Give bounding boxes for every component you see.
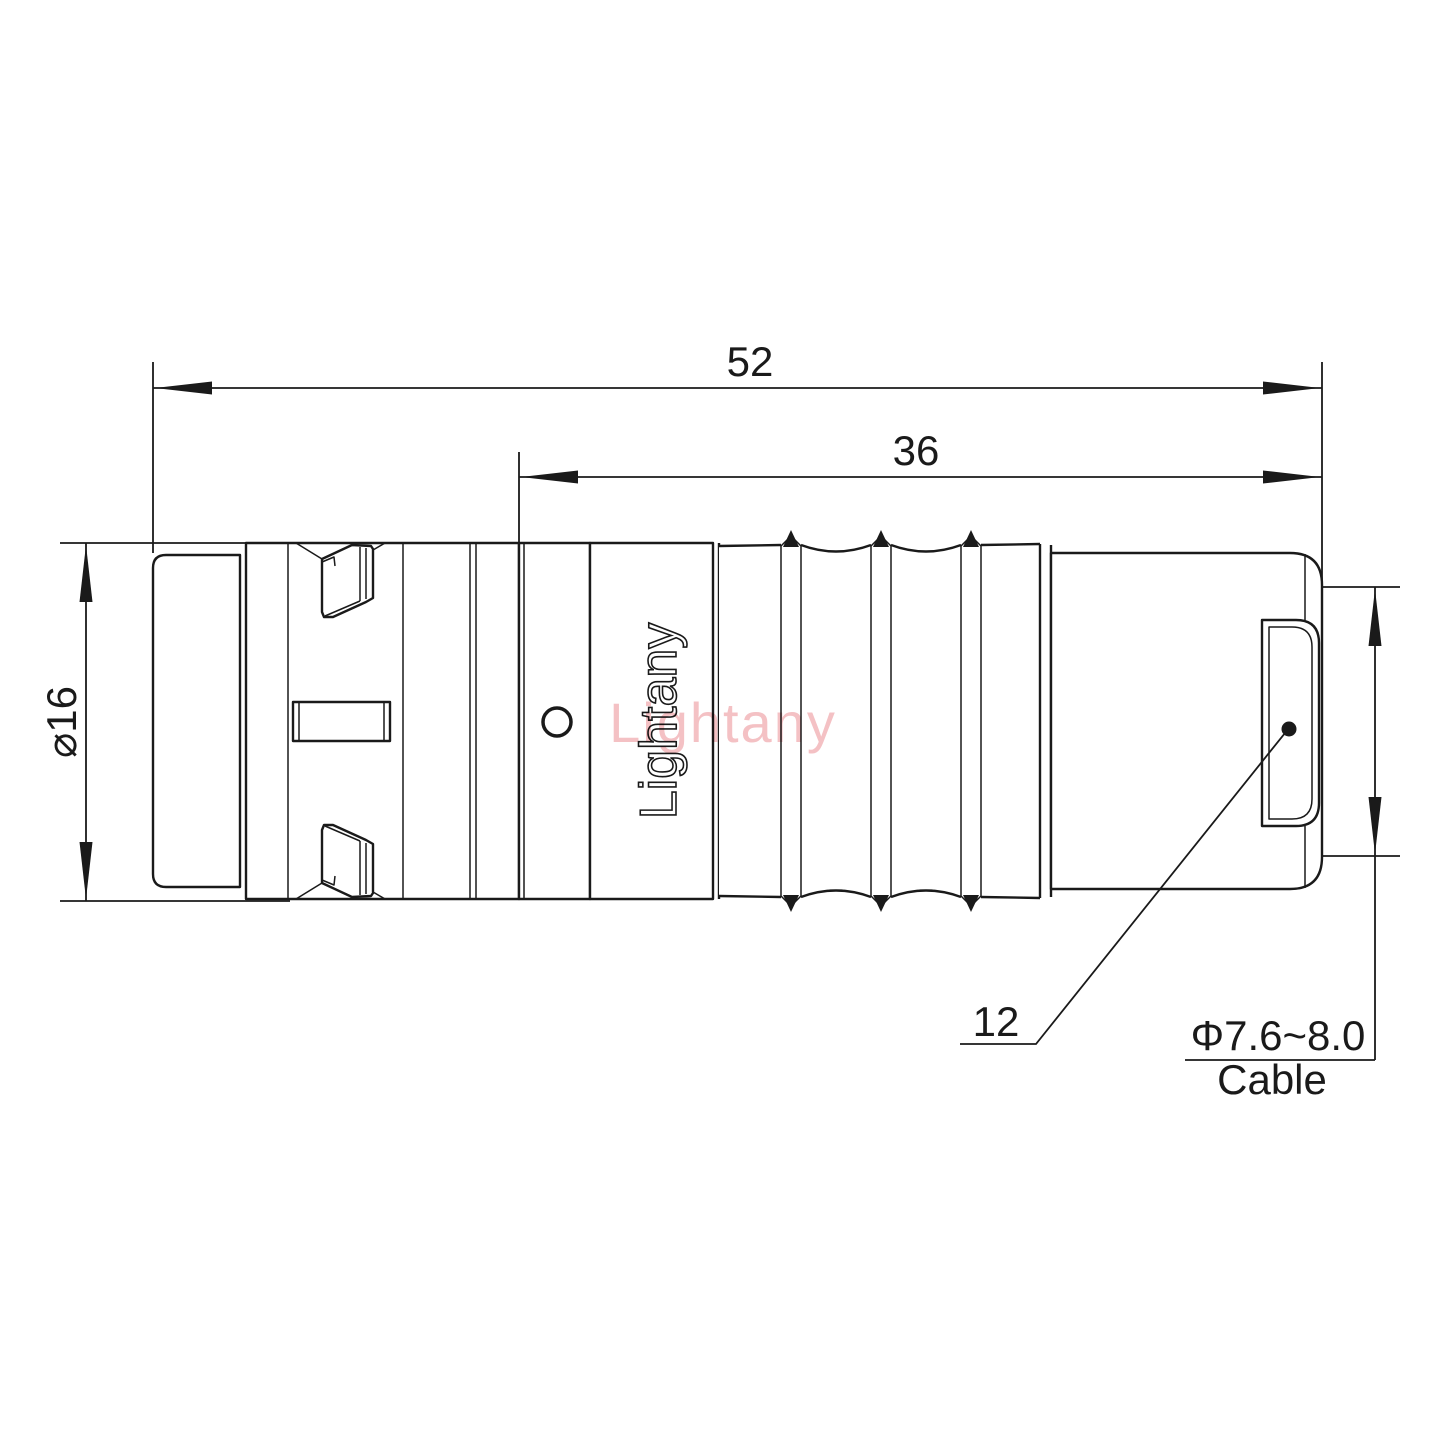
rear-section: [1051, 553, 1322, 889]
connector-drawing-svg: Lightany Lightany: [0, 0, 1440, 1440]
arrowhead-16-bottom: [80, 842, 93, 899]
latch-bridge: [293, 702, 390, 741]
arrowhead-cable-top: [1369, 589, 1382, 646]
dimension-front-length: 36: [519, 427, 1322, 543]
arrowhead-16-top: [80, 545, 93, 602]
arrowhead-52-left: [155, 382, 212, 395]
leader-dot: [1282, 722, 1297, 737]
arrowhead-36-left: [521, 471, 578, 484]
technical-drawing-canvas: Lightany Lightany: [0, 0, 1440, 1440]
cable-range-label: Φ7.6~8.0: [1191, 1012, 1366, 1059]
extension-lines-cable: [1322, 587, 1400, 856]
dimension-label-36: 36: [893, 427, 940, 474]
arrowhead-cable-bottom: [1369, 797, 1382, 854]
dimension-label-16: ⌀16: [38, 686, 85, 758]
cable-word-label: Cable: [1217, 1056, 1327, 1103]
arrowhead-36-right: [1263, 471, 1320, 484]
left-cap: [153, 555, 240, 887]
dimension-label-52: 52: [727, 338, 774, 385]
watermark-text: Lightany: [609, 691, 837, 754]
collar-hole: [543, 708, 571, 736]
dimension-label-12: 12: [973, 998, 1020, 1045]
arrowhead-52-right: [1263, 382, 1320, 395]
